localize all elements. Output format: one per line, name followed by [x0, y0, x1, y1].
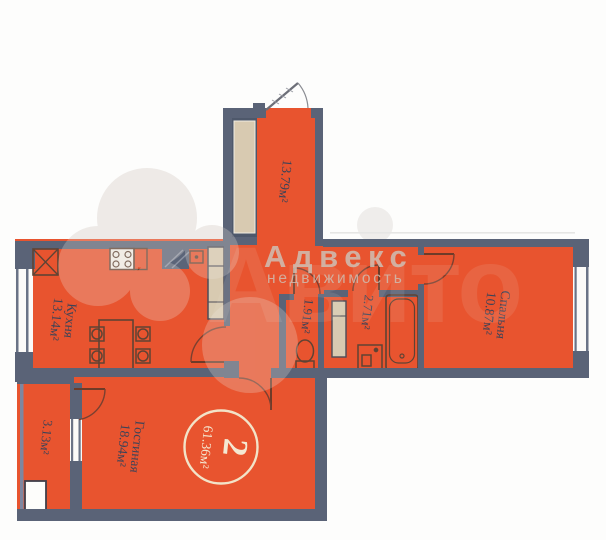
svg-text:Адвекс: Адвекс: [264, 239, 413, 274]
svg-text:недвижимость: недвижимость: [267, 270, 405, 287]
svg-text:Кухня13.14м²: Кухня13.14м²: [47, 297, 80, 343]
svg-text:Гостиная18.94м²: Гостиная18.94м²: [113, 419, 147, 474]
